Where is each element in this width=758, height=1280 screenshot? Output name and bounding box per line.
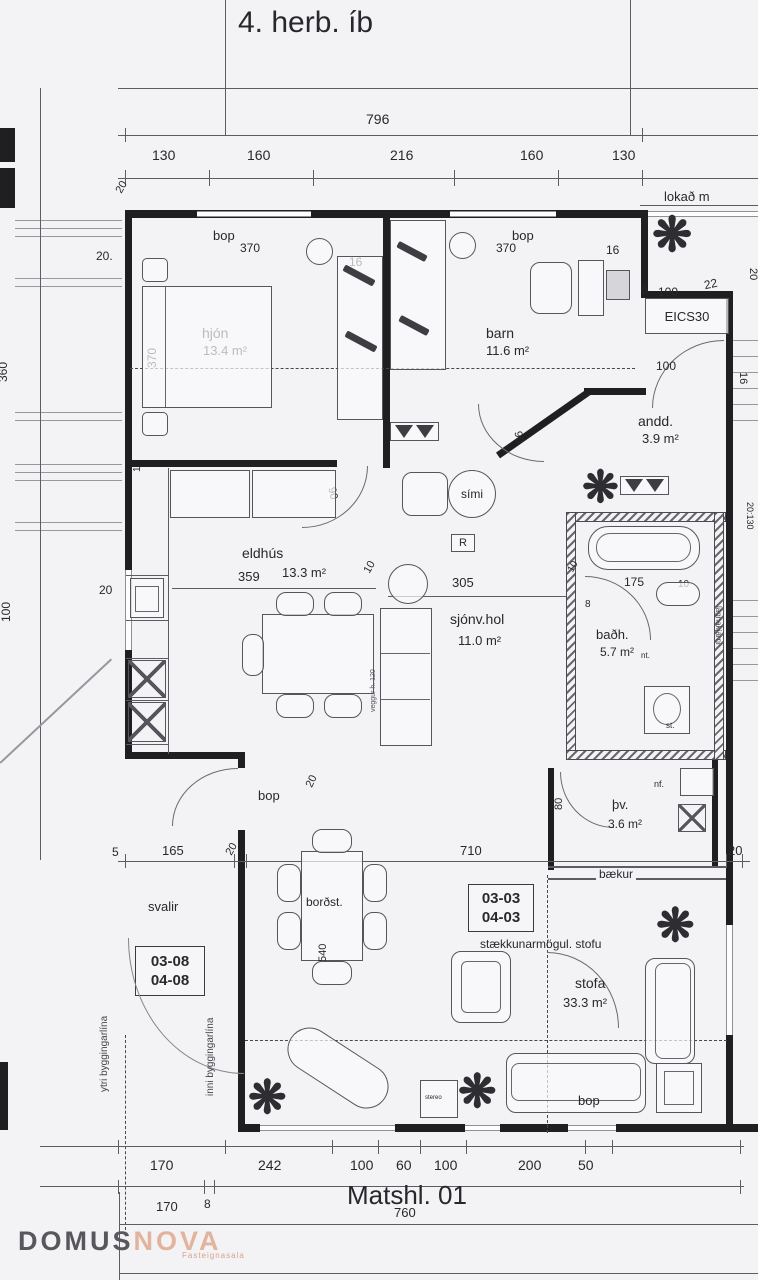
tag-line: 04-03	[469, 909, 533, 926]
wall-thv-left	[548, 768, 554, 870]
room-name-thv: þv.	[612, 798, 628, 811]
kitchen-sink	[130, 578, 164, 618]
logo-domus: DOMUS	[18, 1226, 134, 1257]
bathtub	[588, 526, 700, 570]
wall-stub	[733, 1124, 758, 1132]
stair-line	[733, 680, 758, 681]
dim-seg: 170	[150, 1158, 173, 1172]
dim-left: 20.	[96, 250, 113, 262]
room-name-hol: sjónv.hol	[450, 612, 504, 626]
neighbour-line	[15, 420, 122, 421]
sofa-cushion	[511, 1063, 641, 1101]
dim: 8	[585, 600, 591, 610]
dim-tick	[204, 1180, 205, 1194]
wall-bottom	[616, 1124, 733, 1132]
closet-eics-label: EICS30	[665, 310, 710, 323]
dim: 100	[658, 286, 678, 298]
counter-line	[126, 658, 168, 659]
desk-chair	[530, 262, 572, 314]
window-barn	[450, 211, 556, 217]
plant-icon: ❋	[656, 902, 695, 948]
counter-line	[168, 468, 169, 754]
label-lokad: lokað m	[664, 190, 710, 203]
label-stereo: stereo	[425, 1095, 442, 1101]
radiator-symbol: R	[451, 534, 475, 552]
room-name-stofa: stofa	[575, 976, 605, 990]
stair-line	[733, 616, 758, 617]
building-curve	[128, 938, 244, 1074]
label-matshl: Matshl. 01	[347, 1182, 467, 1208]
room-area-stofa: 33.3 m²	[563, 996, 607, 1009]
wall	[0, 168, 15, 208]
dim-tick	[454, 170, 455, 186]
neighbour-line	[15, 278, 122, 279]
wall-right	[726, 298, 733, 593]
room-area-hol: 11.0 m²	[458, 634, 501, 647]
logo-subtitle: Fasteignasala	[182, 1252, 245, 1260]
room-name-svalir: svalir	[148, 900, 178, 913]
bookshelf-line	[548, 866, 726, 868]
room-area-andd: 3.9 m²	[642, 432, 679, 445]
bathtub-inner	[596, 533, 691, 562]
sofa	[506, 1053, 646, 1113]
page-title: 4. herb. íb	[238, 8, 373, 38]
dim-710: 710	[460, 844, 482, 857]
dim-tick	[118, 1140, 119, 1154]
folding-door-icon	[390, 422, 439, 441]
door-arc-svalir	[172, 768, 238, 826]
dim-tick	[125, 854, 126, 868]
dim-tick	[125, 128, 126, 142]
plant-icon: ❋	[248, 1074, 287, 1120]
desk-screen	[606, 270, 630, 300]
dim-540: 540	[318, 944, 329, 962]
dim-165: 165	[162, 844, 184, 857]
dim-seg: 160	[520, 148, 543, 162]
wall-bath-hatched	[566, 512, 726, 522]
room-name-bordst: borðst.	[306, 896, 343, 908]
stair-line	[733, 340, 758, 341]
dim-tick	[420, 1140, 421, 1154]
chair	[277, 912, 301, 950]
chair	[363, 912, 387, 950]
stair-line	[733, 404, 758, 405]
dim-left: 20	[99, 584, 112, 596]
chair	[277, 864, 301, 902]
label-simi: sími	[461, 488, 483, 500]
room-area-eldhus: 13.3 m²	[282, 566, 326, 579]
room-name-badh: baðh.	[596, 628, 629, 641]
dim-tick	[209, 170, 210, 186]
label-r: R	[459, 538, 467, 549]
dim-tick	[740, 1140, 741, 1154]
dim-seg: 8	[204, 1198, 211, 1210]
armchair	[402, 472, 448, 516]
sofa-cushion	[655, 963, 691, 1059]
grid-line	[640, 205, 758, 206]
tv-bench	[380, 608, 432, 746]
chaise-lounge	[279, 1019, 397, 1117]
dim-door: 90	[511, 430, 524, 444]
dim-seg: 170	[156, 1200, 178, 1213]
neighbour-line	[15, 412, 122, 413]
dim: 20	[747, 268, 758, 280]
neighbour-line	[15, 286, 122, 287]
wall-bottom	[500, 1124, 568, 1132]
dim-tick	[558, 170, 559, 186]
room-name-eldhus: eldhús	[242, 546, 283, 560]
plant-icon: ❋	[652, 212, 692, 260]
stair-line	[733, 388, 758, 389]
dim-tick	[214, 1180, 215, 1194]
neighbour-line	[15, 228, 122, 229]
note-inni: inni byggingarlína	[206, 1018, 216, 1096]
label-bop: bop	[213, 229, 235, 242]
nightstand	[142, 258, 168, 282]
dim-total: 796	[366, 112, 389, 126]
dim-370: 370	[240, 242, 260, 254]
chair	[276, 694, 314, 718]
kitchen-cabinet	[252, 470, 336, 518]
dim-seg: 242	[258, 1158, 281, 1172]
dim-tick	[246, 854, 247, 868]
dim-closet: 16	[606, 244, 619, 256]
dim-line-total	[118, 135, 758, 136]
neighbour-line	[15, 472, 122, 473]
dim-seg: 160	[247, 148, 270, 162]
note-ytri: ytri byggingarlína	[100, 1016, 110, 1092]
diagonal-line	[0, 659, 112, 764]
wall-bath-hatched	[566, 512, 576, 760]
armchair	[451, 951, 511, 1023]
tag-stofa: 03-03 04-03	[468, 884, 534, 932]
counter-line	[126, 744, 168, 745]
window-stofa	[726, 925, 733, 1035]
note-st: st.	[666, 722, 674, 730]
sofa	[645, 958, 695, 1064]
dim-seg: 130	[612, 148, 635, 162]
label-baekur: bækur	[596, 868, 636, 880]
door-arc-entry	[652, 340, 724, 408]
chair	[312, 829, 352, 853]
laundry-symbol	[678, 804, 706, 832]
wall	[0, 128, 15, 162]
kitchen-table	[262, 614, 374, 694]
stair-line	[733, 664, 758, 665]
wall-kitchen-bottom	[125, 752, 245, 759]
dim-20: 20	[305, 774, 320, 790]
stereo-cabinet: stereo	[420, 1080, 458, 1118]
dim-left: 5	[112, 846, 119, 858]
bench-line	[381, 653, 430, 654]
dim-seg: 100	[434, 1158, 457, 1172]
bed-line	[165, 287, 166, 407]
room-name-andd: andd.	[638, 414, 673, 428]
dim-door: 100	[656, 360, 676, 372]
dim-tick	[585, 1140, 586, 1154]
wall-entry-top	[641, 291, 733, 298]
wall-bottom	[395, 1124, 465, 1132]
dim-line-segments	[118, 178, 758, 179]
dim-small: 20	[114, 179, 130, 195]
neighbour-line	[15, 464, 122, 465]
dim-370: 370	[496, 242, 516, 254]
dim: 10	[362, 559, 378, 575]
floor-plan-sheet: 4. herb. íb 796 130 160 216 160 130 20 l…	[0, 0, 758, 1280]
chair	[324, 694, 362, 718]
chair	[242, 634, 264, 676]
dim-tick	[313, 170, 314, 186]
dim-20: 20	[728, 844, 742, 857]
side-table	[656, 1063, 702, 1113]
dim-tick	[642, 170, 643, 186]
dim: 6	[641, 284, 648, 296]
grid-line	[225, 0, 226, 135]
dim-seg: 130	[152, 148, 175, 162]
room-area-badh: 5.7 m²	[600, 646, 634, 658]
note-lagnakjarni: lagnakjarni	[714, 606, 722, 645]
building-line	[40, 88, 41, 860]
dim-left: 100	[0, 602, 12, 622]
stair-line	[733, 632, 758, 633]
cabinet-nf	[680, 768, 714, 796]
plant-icon: ❋	[582, 466, 619, 510]
neighbour-line	[15, 530, 122, 531]
stool	[449, 232, 476, 259]
kitchen-cabinet	[170, 470, 250, 518]
note-wall: veggur h. 120	[370, 669, 377, 712]
dim-seg: 200	[518, 1158, 541, 1172]
dim-20-130: 20:130	[745, 502, 754, 530]
dim-tick	[332, 1140, 333, 1154]
room-area-thv: 3.6 m²	[608, 818, 642, 830]
room-name-barn: barn	[486, 326, 514, 340]
bookshelf-line	[548, 878, 726, 880]
dashed-line	[125, 1035, 126, 1230]
label-bop: bop	[258, 789, 280, 802]
note-nt: nt.	[641, 652, 650, 660]
dim-seg: 60	[396, 1158, 412, 1172]
grid-line	[118, 88, 758, 89]
neighbour-line	[15, 522, 122, 523]
wall-bottom	[238, 1124, 260, 1132]
frame-line	[119, 1273, 758, 1274]
dim-tick	[612, 1140, 613, 1154]
stair-line	[733, 420, 758, 421]
frame-line	[119, 1224, 758, 1225]
nightstand	[142, 412, 168, 436]
wall-stub	[0, 1062, 8, 1130]
dim-left: 360	[0, 362, 9, 382]
chair	[276, 592, 314, 616]
dim-seg: 50	[578, 1158, 594, 1172]
bed-hjon	[142, 286, 272, 408]
side-table	[388, 564, 428, 604]
counter-line	[126, 575, 168, 576]
door-arc-thv	[560, 772, 614, 828]
dim-seg: 100	[350, 1158, 373, 1172]
chair	[312, 961, 352, 985]
stair-line	[733, 600, 758, 601]
neighbour-line	[15, 480, 122, 481]
dim-seg: 216	[390, 148, 413, 162]
note-extension: stækkunarmögul. stofu	[480, 938, 601, 950]
dim-line	[172, 588, 376, 589]
sink-basin	[135, 586, 159, 612]
chair	[324, 592, 362, 616]
stair-line	[733, 648, 758, 649]
stove	[128, 702, 166, 742]
closet-eics: EICS30	[645, 298, 729, 334]
dim-tick	[726, 854, 727, 868]
neighbour-line	[15, 236, 122, 237]
wall-right	[726, 871, 733, 925]
counter-line	[126, 620, 168, 621]
plant-icon: ❋	[458, 1068, 497, 1114]
dim-tick	[225, 1140, 226, 1154]
neighbour-line	[15, 220, 122, 221]
dim: 359	[238, 570, 260, 583]
note-nf: nf.	[654, 780, 664, 789]
dim: 16	[737, 372, 748, 384]
stool	[306, 238, 333, 265]
folding-door-icon	[620, 476, 669, 495]
desk	[578, 260, 604, 316]
stair-line	[733, 372, 758, 373]
chair	[363, 864, 387, 902]
wall-right	[726, 1035, 733, 1132]
dim-80: 80	[554, 798, 565, 810]
side-table-top	[664, 1071, 694, 1105]
dim-tick	[466, 1140, 467, 1154]
washbasin	[656, 582, 700, 606]
stove	[128, 660, 166, 698]
counter-line	[126, 700, 168, 701]
room-area-barn: 11.6 m²	[486, 344, 529, 357]
grid-line	[630, 0, 631, 135]
label-bop: bop	[578, 1094, 600, 1107]
phone-table: sími	[448, 470, 496, 518]
wall-barn-bottom	[584, 388, 646, 395]
dim-line	[118, 861, 750, 862]
dim: 22	[703, 277, 719, 292]
stair-line	[733, 356, 758, 357]
window-hjon	[197, 211, 311, 217]
wall-right	[726, 593, 733, 871]
bench-line	[381, 699, 430, 700]
wall-bath-hatched	[566, 750, 726, 760]
dim-tick	[378, 1140, 379, 1154]
tag-line: 03-03	[469, 890, 533, 907]
dim-175: 175	[624, 576, 644, 588]
dim-305: 305	[452, 576, 474, 589]
armchair-cushion	[461, 961, 501, 1013]
dim-line	[40, 1146, 744, 1147]
dim-tick	[642, 128, 643, 142]
dim-tick	[740, 1180, 741, 1194]
wall-bedroom-divider	[383, 216, 390, 468]
